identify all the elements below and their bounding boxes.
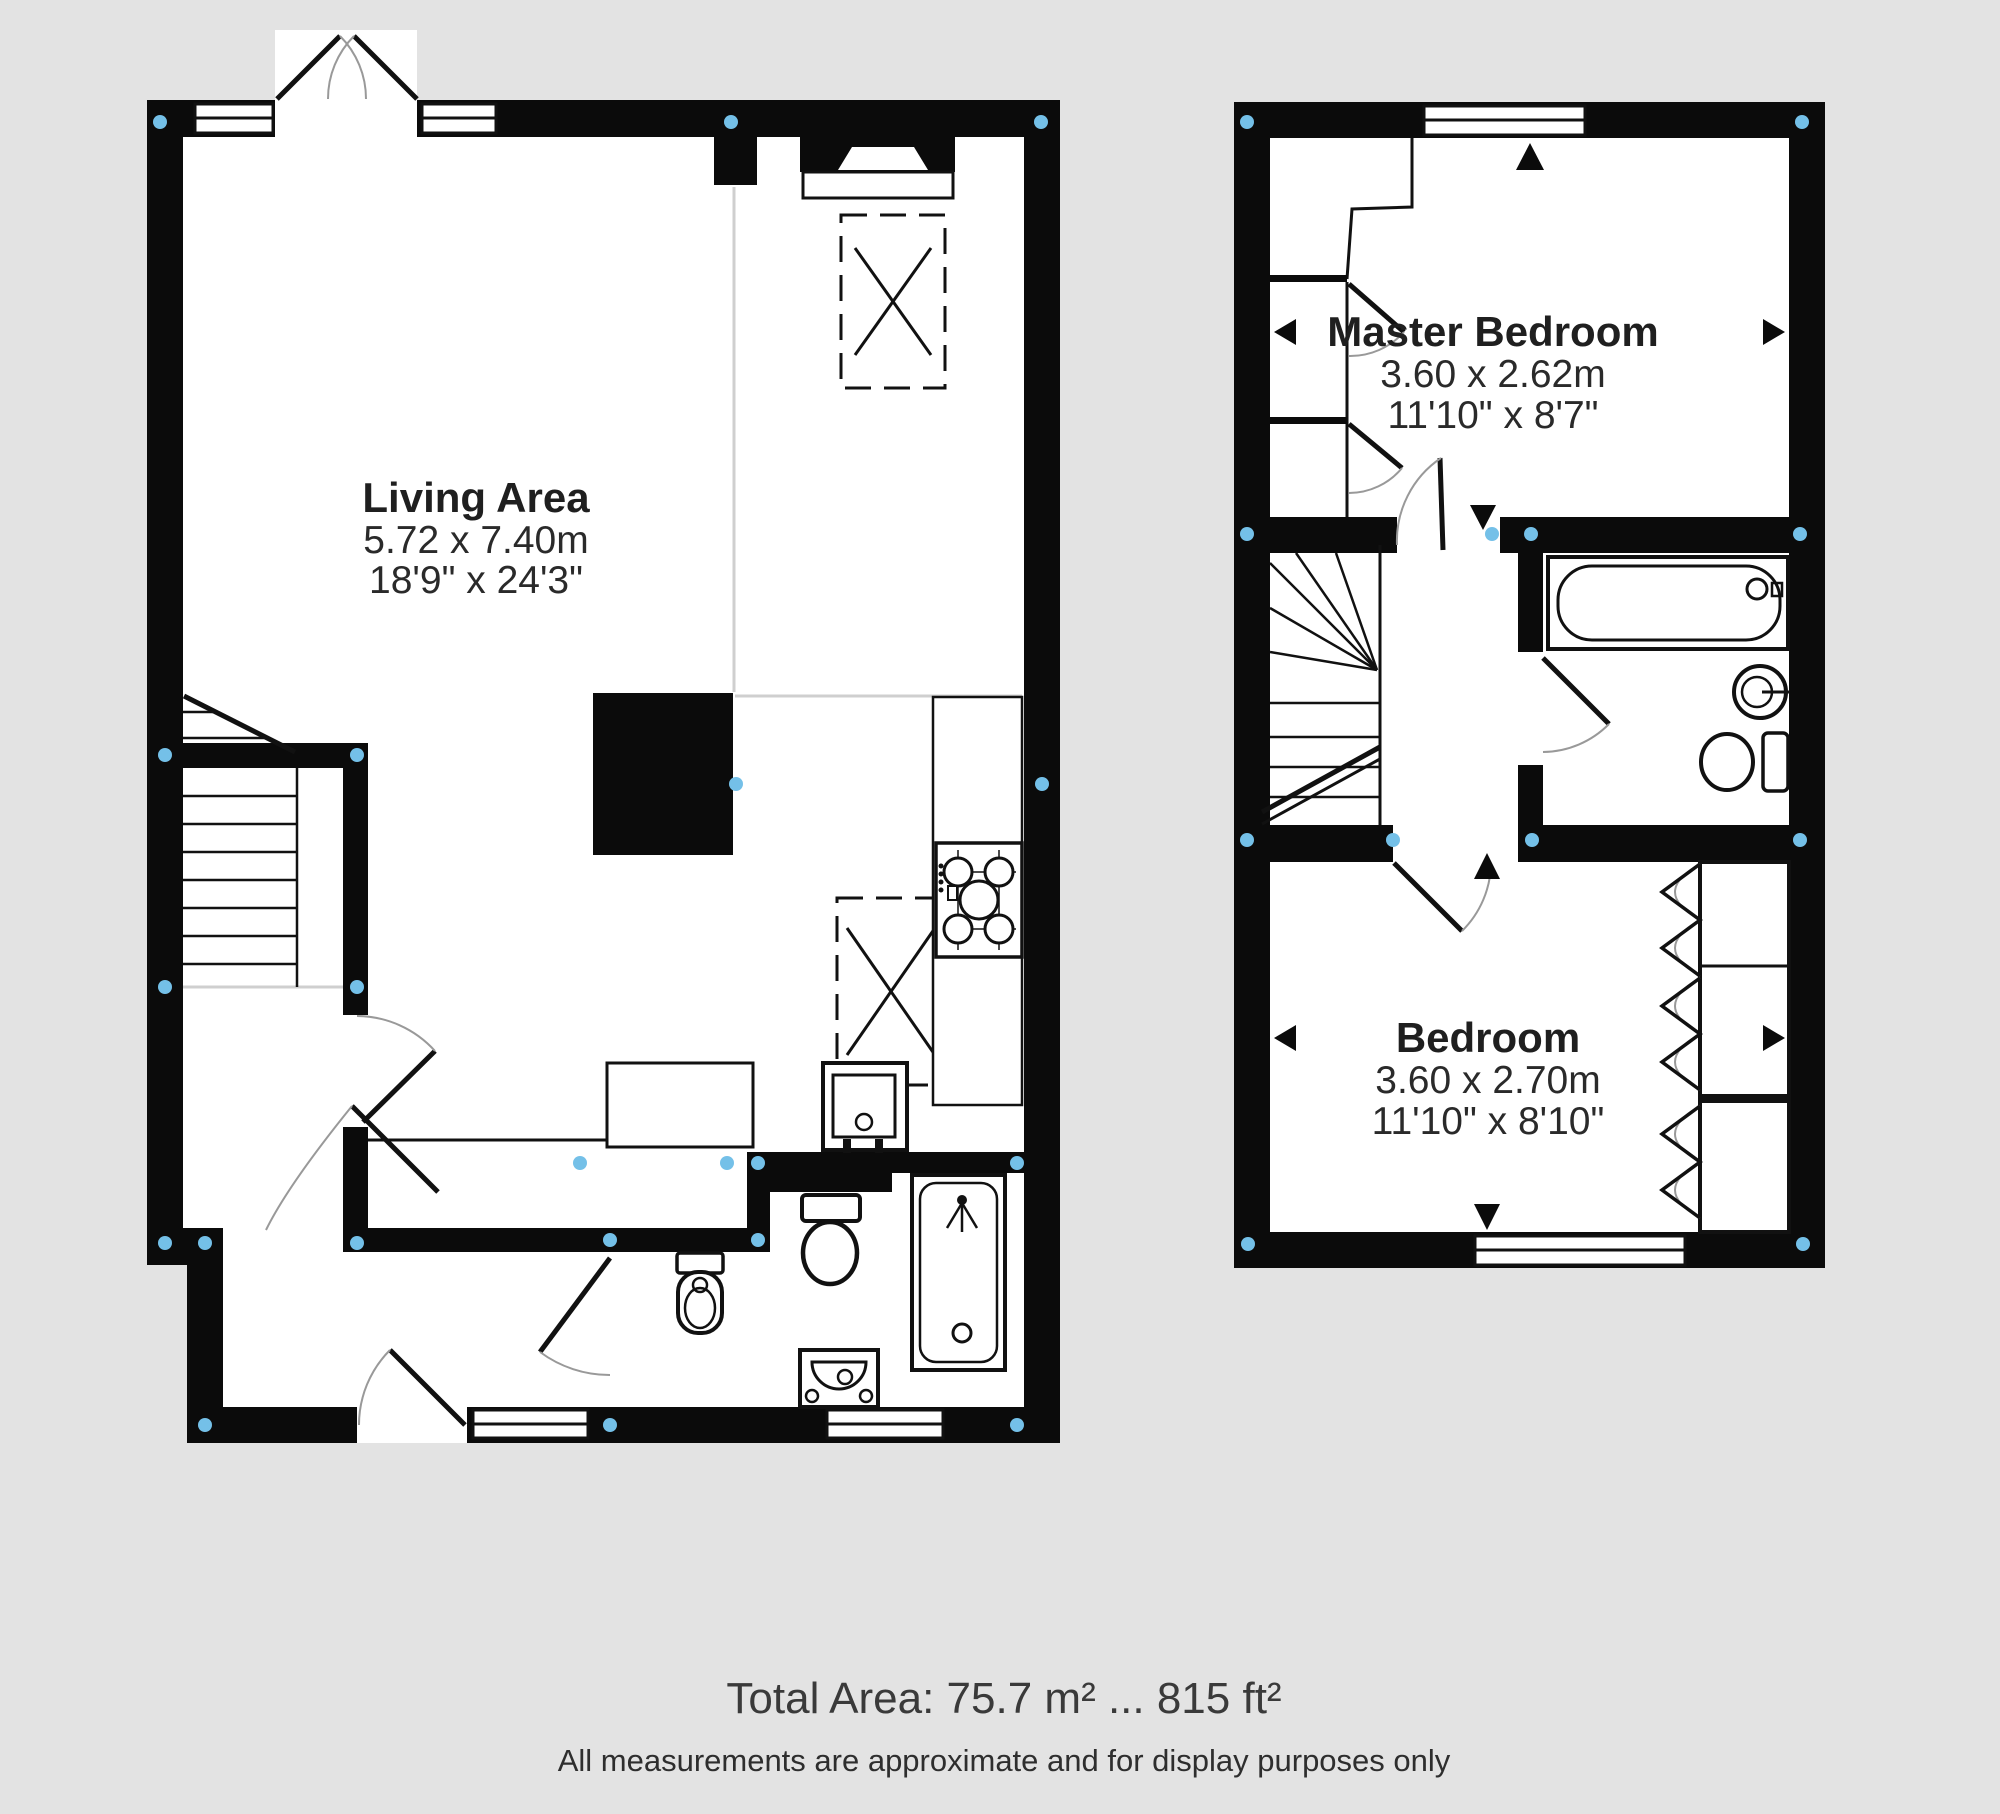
- kitchen-south-wall-right: [892, 1152, 1024, 1173]
- stair-top-wall: [1258, 517, 1397, 553]
- window-symbol: [473, 1410, 588, 1438]
- kitchen-south-wall-mid: [747, 1152, 892, 1192]
- window-symbol: [1424, 106, 1585, 135]
- toilet-symbol: [1701, 733, 1788, 791]
- bathtub-symbol: [1548, 557, 1788, 649]
- patio-door-opening: [275, 96, 417, 141]
- living-area-label: Living Area: [362, 474, 590, 521]
- bathroom-west-wall-a: [1518, 553, 1543, 652]
- bathroom-west-wall-b: [1518, 765, 1543, 825]
- living-area-imperial: 18'9" x 24'3": [369, 559, 583, 602]
- toilet-symbol: [802, 1195, 860, 1284]
- window-symbol: [422, 104, 496, 133]
- bedroom-metric: 3.60 x 2.70m: [1375, 1059, 1600, 1102]
- shower-bath-symbol: [912, 1175, 1005, 1370]
- chimney-block: [593, 693, 733, 855]
- landing-south-wall: [1258, 825, 1393, 862]
- master-bedroom-label: Master Bedroom: [1327, 308, 1658, 355]
- hall-wall-lower: [343, 1127, 368, 1252]
- hob-symbol: [936, 843, 1022, 957]
- total-area-text: Total Area: 75.7 m² ... 815 ft²: [726, 1674, 1281, 1723]
- disclaimer-text: All measurements are approximate and for…: [558, 1743, 1451, 1778]
- first-floor-plan: Master Bedroom 3.60 x 2.62m 11'10" x 8'7…: [1234, 102, 1825, 1268]
- kitchen-sink-symbol: [823, 1063, 907, 1153]
- bedroom-imperial: 11'10" x 8'10": [1372, 1100, 1605, 1143]
- floorplan-canvas: Living Area 5.72 x 7.40m 18'9" x 24'3": [0, 0, 2000, 1814]
- bathroom-south-wall: [1518, 825, 1789, 862]
- ground-floor-plan: Living Area 5.72 x 7.40m 18'9" x 24'3": [147, 30, 1060, 1443]
- master-bedroom-metric: 3.60 x 2.62m: [1380, 353, 1605, 396]
- hall-wall-upper: [343, 743, 368, 1015]
- washbasin-symbol: [800, 1350, 878, 1407]
- window-symbol: [195, 104, 273, 133]
- wc-north-wall: [368, 1228, 770, 1252]
- window-symbol: [1475, 1236, 1685, 1265]
- living-area-metric: 5.72 x 7.40m: [363, 519, 588, 562]
- stair-enclosure-wall: [147, 743, 368, 768]
- wall-stub: [714, 137, 757, 185]
- kitchen-counter-bottom: [607, 1063, 753, 1147]
- wc-toilet-symbol: [677, 1253, 723, 1333]
- bedroom-label: Bedroom: [1396, 1014, 1580, 1061]
- window-symbol: [827, 1410, 943, 1438]
- floorplan-page: Living Area 5.72 x 7.40m 18'9" x 24'3": [0, 0, 2000, 1814]
- master-bedroom-imperial: 11'10" x 8'7": [1388, 394, 1599, 437]
- master-south-wall: [1500, 517, 1789, 553]
